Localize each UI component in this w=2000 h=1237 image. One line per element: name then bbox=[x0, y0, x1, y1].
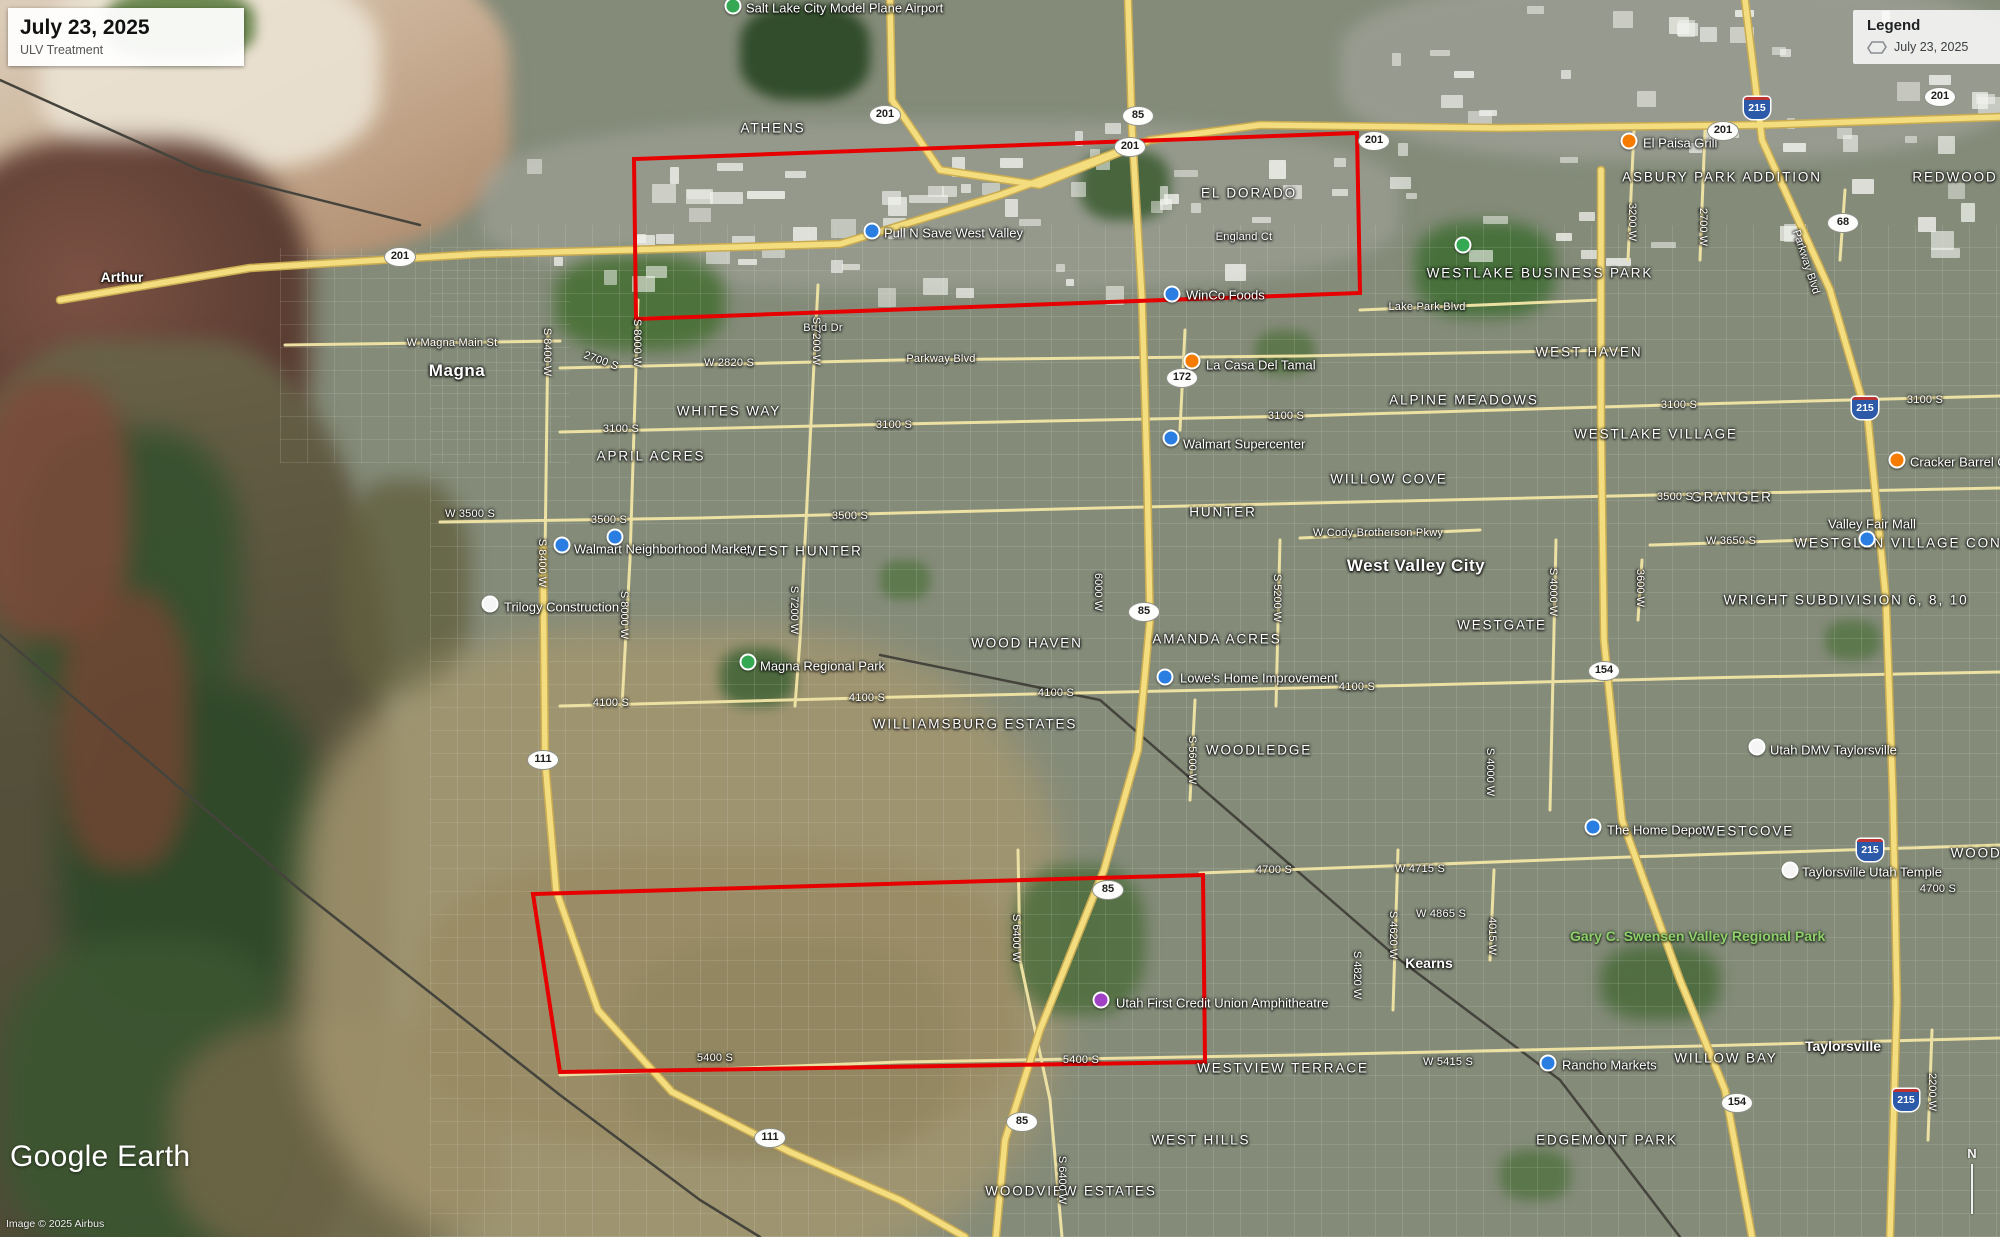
street-label: S 8000 W bbox=[631, 319, 643, 367]
poi-marker[interactable] bbox=[1621, 133, 1638, 150]
street-label: 3200 W bbox=[1626, 203, 1638, 241]
poi-label[interactable]: Lowe's Home Improvement bbox=[1180, 671, 1338, 686]
route-shield-201: 201 bbox=[384, 247, 416, 267]
street-label: S 4000 W bbox=[1484, 748, 1496, 796]
neighborhood-label: ASBURY PARK ADDITION bbox=[1622, 170, 1822, 185]
street-label: W 4865 S bbox=[1416, 908, 1466, 920]
poi-marker[interactable] bbox=[554, 537, 571, 554]
street-label: 3500 S bbox=[1657, 491, 1693, 503]
neighborhood-label: WESTLAKE BUSINESS PARK bbox=[1427, 266, 1654, 281]
neighborhood-label: ATHENS bbox=[740, 121, 805, 136]
street-label: S 4620 W bbox=[1387, 911, 1399, 959]
poi-label[interactable]: Trilogy Construction bbox=[504, 600, 619, 615]
street-label: 4100 S bbox=[1339, 681, 1375, 693]
street-label: 6000 W bbox=[1092, 573, 1104, 611]
street-label: W 5415 S bbox=[1423, 1056, 1473, 1068]
route-shield-68: 68 bbox=[1827, 213, 1859, 233]
route-shield-215: 215 bbox=[1744, 97, 1770, 119]
route-shield-201: 201 bbox=[1114, 137, 1146, 157]
city-label: Arthur bbox=[101, 269, 144, 285]
route-shield-201: 201 bbox=[1924, 87, 1956, 107]
neighborhood-label: GRANGER bbox=[1691, 490, 1773, 505]
neighborhood-label: WILLOW COVE bbox=[1330, 472, 1448, 487]
poi-marker[interactable] bbox=[1585, 819, 1602, 836]
street-label: W 4715 S bbox=[1395, 863, 1445, 875]
neighborhood-label: EDGEMONT PARK bbox=[1536, 1133, 1678, 1148]
neighborhood-label: WEST HILLS bbox=[1152, 1133, 1251, 1148]
street-label: 5400 S bbox=[697, 1052, 733, 1064]
poi-label[interactable]: Walmart Neighborhood Market bbox=[574, 542, 751, 557]
neighborhood-label: APRIL ACRES bbox=[597, 449, 706, 464]
poi-marker[interactable] bbox=[1164, 286, 1181, 303]
treatment-area-polygon-2[interactable] bbox=[533, 875, 1205, 1072]
street-label: 4700 S bbox=[1256, 864, 1292, 876]
route-shield-85: 85 bbox=[1092, 880, 1124, 900]
street-label: 4100 S bbox=[593, 697, 629, 709]
neighborhood-label: WHITES WAY bbox=[677, 404, 781, 419]
neighborhood-label: WILLOW BAY bbox=[1674, 1051, 1777, 1066]
street-label: W Cody Brotherson Pkwy bbox=[1313, 527, 1443, 539]
street-label: S 7200 W bbox=[810, 317, 822, 365]
poi-label[interactable]: Cracker Barrel Old Country Store bbox=[1910, 455, 2000, 470]
neighborhood-label: EL DORADO bbox=[1201, 186, 1297, 201]
poi-label[interactable]: Magna Regional Park bbox=[760, 659, 885, 674]
poi-label[interactable]: WinCo Foods bbox=[1186, 288, 1265, 303]
neighborhood-label: WOODVIEW ESTATES bbox=[985, 1184, 1157, 1199]
poi-marker[interactable] bbox=[1889, 452, 1906, 469]
street-label: 3100 S bbox=[603, 423, 639, 435]
street-label: W Magna Main St bbox=[407, 337, 498, 349]
street-label: 3100 S bbox=[1907, 394, 1943, 406]
poi-label[interactable]: Salt Lake City Model Plane Airport bbox=[746, 1, 943, 16]
park-label[interactable]: Gary C. Swensen Valley Regional Park bbox=[1570, 928, 1825, 944]
street-label: S 6400 W bbox=[1056, 1156, 1068, 1204]
street-label: 3500 S bbox=[591, 514, 627, 526]
poi-marker[interactable] bbox=[740, 654, 757, 671]
street-label: S 7200 W bbox=[788, 586, 800, 634]
route-shield-154: 154 bbox=[1721, 1093, 1753, 1113]
poi-label[interactable]: The Home Depot bbox=[1607, 823, 1706, 838]
google-earth-logo: Google Earth bbox=[10, 1140, 190, 1174]
neighborhood-label: WILLIAMSBURG ESTATES bbox=[873, 717, 1078, 732]
street-label: 3600 W bbox=[1634, 569, 1646, 607]
route-shield-85: 85 bbox=[1006, 1112, 1038, 1132]
city-label: Magna bbox=[429, 361, 485, 381]
poi-marker[interactable] bbox=[1163, 430, 1180, 447]
street-label: S 8400 W bbox=[536, 539, 548, 587]
city-label: West Valley City bbox=[1347, 556, 1485, 576]
street-label: W 3650 S bbox=[1706, 535, 1756, 547]
neighborhood-label: WOODH bbox=[1951, 846, 2000, 861]
poi-marker[interactable] bbox=[1093, 992, 1110, 1009]
poi-label[interactable]: Utah DMV Taylorsville bbox=[1770, 743, 1897, 758]
street-label: Lake Park Blvd bbox=[1388, 301, 1465, 313]
neighborhood-label: HUNTER bbox=[1189, 505, 1257, 520]
route-shield-215: 215 bbox=[1852, 397, 1878, 419]
treatment-type: ULV Treatment bbox=[20, 43, 232, 57]
poi-label[interactable]: La Casa Del Tamal bbox=[1206, 358, 1316, 373]
street-label: 3100 S bbox=[1661, 399, 1697, 411]
street-label: 3100 S bbox=[1268, 410, 1304, 422]
poi-label[interactable]: Walmart Supercenter bbox=[1183, 437, 1305, 452]
neighborhood-label: WRIGHT SUBDIVISION 6, 8, 10 bbox=[1723, 593, 1968, 608]
street-label: W 3500 S bbox=[445, 508, 495, 520]
imagery-copyright: Image © 2025 Airbus bbox=[6, 1218, 104, 1230]
street-label: 4100 S bbox=[1038, 687, 1074, 699]
route-shield-215: 215 bbox=[1857, 839, 1883, 861]
poi-label[interactable]: Valley Fair Mall bbox=[1828, 517, 1916, 532]
street-label: 4015 W bbox=[1486, 917, 1498, 955]
poi-marker[interactable] bbox=[1455, 237, 1472, 254]
neighborhood-label: REDWOOD bbox=[1912, 170, 1997, 185]
neighborhood-label: WEST HUNTER bbox=[743, 544, 863, 559]
street-label: 2200 W bbox=[1926, 1073, 1938, 1111]
street-label: S 5200 W bbox=[1271, 574, 1283, 622]
north-label: N bbox=[1962, 1146, 1982, 1161]
street-label: S 4820 W bbox=[1351, 951, 1363, 999]
google-earth-map-view[interactable]: ArthurMagnaWest Valley CityKearnsTaylors… bbox=[0, 0, 2000, 1237]
street-label: Parkway Blvd bbox=[906, 353, 975, 365]
street-label: S 6400 W bbox=[1010, 914, 1022, 962]
street-label: S 4000 W bbox=[1547, 568, 1559, 616]
poi-label[interactable]: Pull N Save West Valley bbox=[884, 226, 1023, 241]
route-shield-172: 172 bbox=[1166, 368, 1198, 388]
city-label: Kearns bbox=[1405, 955, 1452, 971]
compass-needle bbox=[1971, 1164, 1973, 1214]
route-shield-215: 215 bbox=[1893, 1089, 1919, 1111]
poi-marker[interactable] bbox=[607, 529, 624, 546]
poi-marker[interactable] bbox=[1859, 531, 1876, 548]
street-label: S 5600 W bbox=[1186, 736, 1198, 784]
street-label: 4700 S bbox=[1920, 883, 1956, 895]
route-shield-201: 201 bbox=[1707, 121, 1739, 141]
street-label: 4100 S bbox=[849, 692, 885, 704]
street-label: England Ct bbox=[1216, 231, 1273, 243]
poi-marker[interactable] bbox=[482, 596, 499, 613]
route-shield-154: 154 bbox=[1588, 661, 1620, 681]
street-label: 5400 S bbox=[1063, 1054, 1099, 1066]
route-shield-85: 85 bbox=[1128, 602, 1160, 622]
route-shield-111: 111 bbox=[527, 750, 559, 770]
route-shield-201: 201 bbox=[869, 105, 901, 125]
north-compass[interactable]: N bbox=[1962, 1146, 1982, 1221]
street-label: 3500 S bbox=[832, 510, 868, 522]
poi-label[interactable]: El Paisa Grill bbox=[1643, 136, 1717, 151]
street-label: 2700 W bbox=[1697, 208, 1709, 246]
date-overlay-panel: July 23, 2025 ULV Treatment bbox=[8, 8, 244, 66]
poi-marker[interactable] bbox=[1782, 862, 1799, 879]
neighborhood-label: WESTCOVE bbox=[1702, 824, 1794, 839]
poi-label[interactable]: Taylorsville Utah Temple bbox=[1802, 865, 1942, 880]
poi-marker[interactable] bbox=[1540, 1055, 1557, 1072]
legend-title: Legend bbox=[1867, 17, 2000, 34]
legend-entry-label: July 23, 2025 bbox=[1894, 40, 1968, 54]
street-label: W 2820 S bbox=[704, 357, 754, 369]
street-label: S 8400 W bbox=[541, 328, 553, 376]
poi-marker[interactable] bbox=[864, 223, 881, 240]
neighborhood-label: WOODLEDGE bbox=[1206, 743, 1312, 758]
poi-marker[interactable] bbox=[1749, 739, 1766, 756]
neighborhood-label: AMANDA ACRES bbox=[1152, 632, 1281, 647]
neighborhood-label: WESTGLEN VILLAGE CONDO bbox=[1794, 536, 2000, 551]
route-shield-85: 85 bbox=[1122, 106, 1154, 126]
street-label: S 8000 W bbox=[618, 591, 630, 639]
poi-marker[interactable] bbox=[1157, 669, 1174, 686]
treatment-date: July 23, 2025 bbox=[20, 16, 232, 40]
neighborhood-label: WOOD HAVEN bbox=[971, 636, 1083, 651]
neighborhood-label: WEST HAVEN bbox=[1536, 345, 1643, 360]
legend-panel: Legend July 23, 2025 bbox=[1853, 10, 2000, 64]
neighborhood-label: ALPINE MEADOWS bbox=[1389, 393, 1538, 408]
neighborhood-label: WESTGATE bbox=[1457, 618, 1547, 633]
polygon-icon bbox=[1867, 41, 1887, 54]
city-label: Taylorsville bbox=[1805, 1038, 1881, 1054]
route-shield-201: 201 bbox=[1358, 131, 1390, 151]
poi-label[interactable]: Utah First Credit Union Amphitheatre bbox=[1116, 996, 1328, 1011]
poi-label[interactable]: Rancho Markets bbox=[1562, 1058, 1657, 1073]
neighborhood-label: WESTVIEW TERRACE bbox=[1197, 1061, 1369, 1076]
route-shield-111: 111 bbox=[754, 1128, 786, 1148]
poi-marker[interactable] bbox=[1184, 353, 1201, 370]
street-label: 3100 S bbox=[876, 419, 912, 431]
neighborhood-label: WESTLAKE VILLAGE bbox=[1574, 427, 1738, 442]
